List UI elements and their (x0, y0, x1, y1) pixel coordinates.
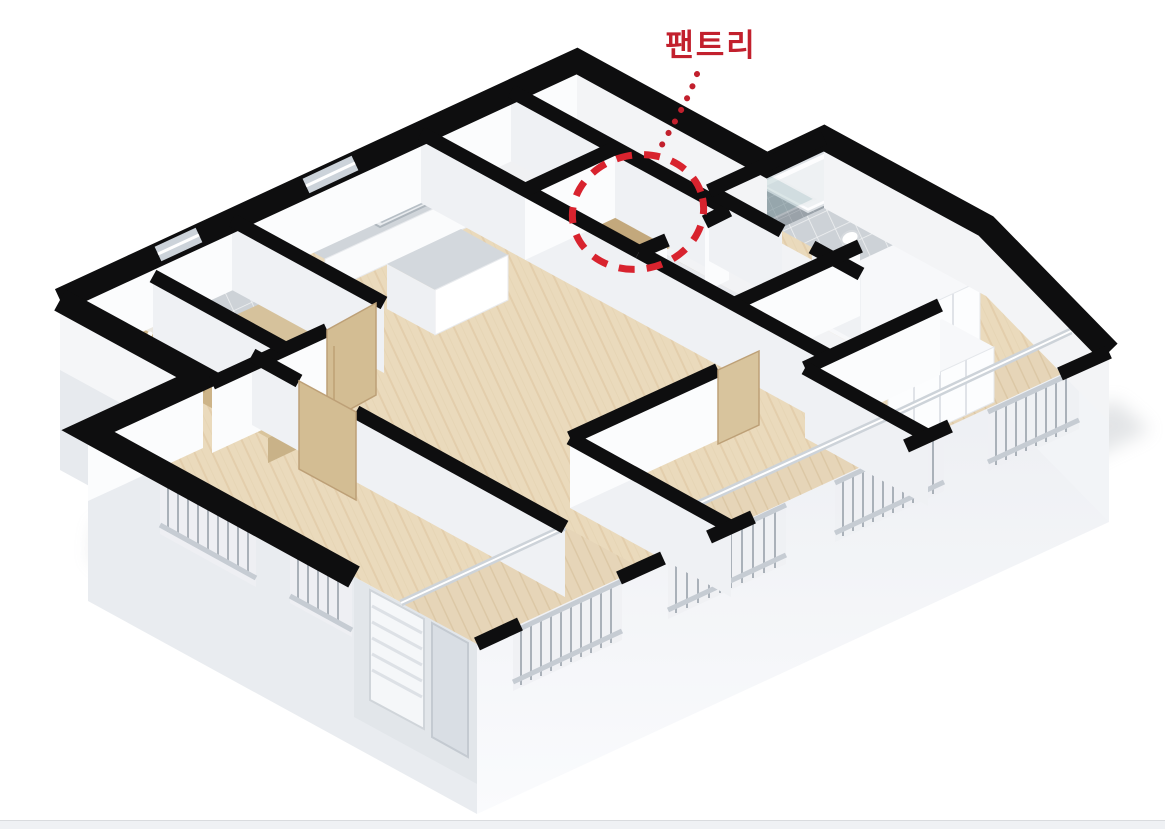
entry-door (432, 623, 468, 757)
floor-plan-figure: 팬트리 (0, 0, 1165, 829)
isometric-floor-plan (0, 0, 1165, 829)
pantry-label: 팬트리 (665, 20, 757, 65)
footer-strip (0, 820, 1165, 829)
